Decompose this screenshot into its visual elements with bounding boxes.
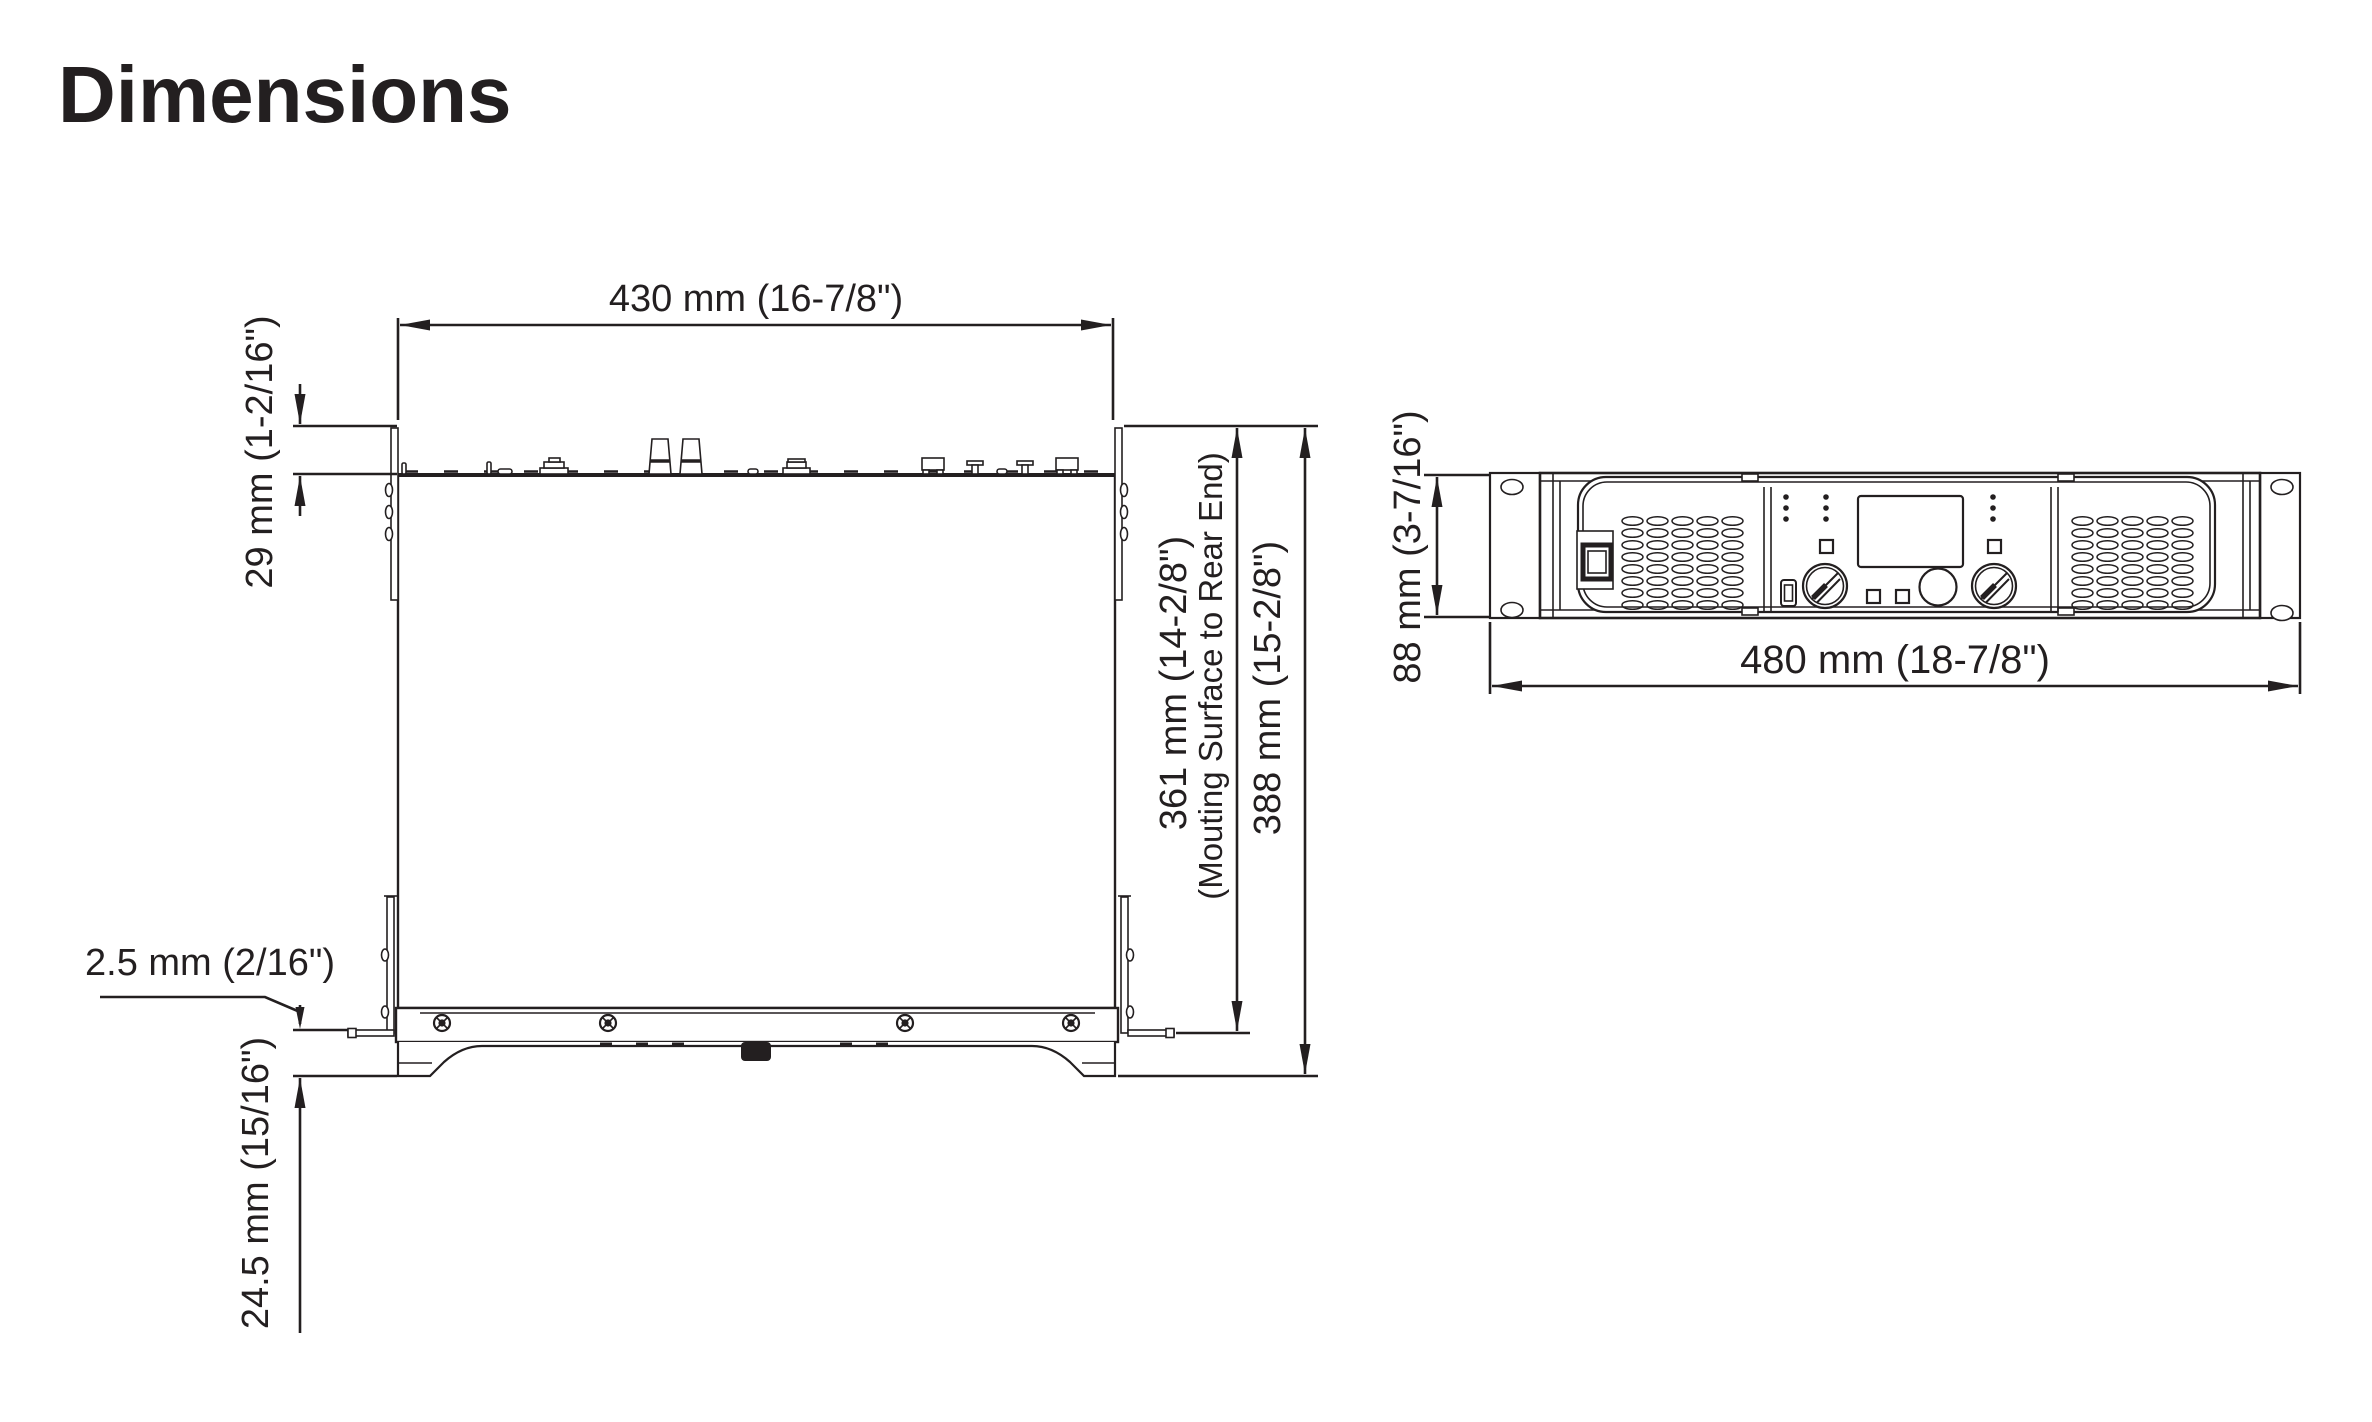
display-screen xyxy=(1858,496,1963,567)
dimensions-drawing: Dimensions xyxy=(0,0,2372,1422)
front-screw xyxy=(434,1015,450,1031)
led-meter-c xyxy=(1990,494,1996,522)
rear-bump xyxy=(748,469,758,474)
rear-bump xyxy=(997,469,1007,474)
dimension-width-430: 430 mm (16-7/8") xyxy=(398,278,1113,420)
rear-connectors xyxy=(402,439,1078,474)
dimensions-page: Dimensions xyxy=(0,0,2372,1422)
mounting-depth-label: 361 mm (14-2/8") xyxy=(1153,536,1195,830)
height-label: 88 mm (3-7/16") xyxy=(1387,410,1429,683)
usb-port xyxy=(1781,580,1796,606)
vent-grille-left xyxy=(1620,515,1745,611)
width-label: 430 mm (16-7/8") xyxy=(609,278,903,320)
gain-knob-b xyxy=(1972,564,2016,608)
rear-rail-left xyxy=(386,428,399,600)
rear-terminal-block xyxy=(540,458,568,474)
led-meter-b xyxy=(1823,494,1829,522)
small-button-a xyxy=(1867,590,1880,603)
dimension-rear-29: 29 mm (1-2/16") xyxy=(239,315,397,588)
front-width-label: 480 mm (18-7/8") xyxy=(1740,638,2050,682)
rear-pin xyxy=(402,463,406,474)
top-view: 430 mm (16-7/8") 29 mm (1-2/16") 361 mm … xyxy=(85,278,1318,1333)
dimension-depth-361-388: 361 mm (14-2/8") (Mouting Surface to Rea… xyxy=(1118,426,1318,1076)
dimension-ear-offset-2-5: 2.5 mm (2/16") xyxy=(85,942,348,1030)
vent-grille-right xyxy=(2070,515,2195,611)
rack-ear-left xyxy=(1490,473,1540,618)
led-meter-a xyxy=(1783,494,1789,522)
power-button xyxy=(1577,531,1613,589)
dimension-width-480: 480 mm (18-7/8") xyxy=(1490,622,2300,694)
ear-offset-label: 2.5 mm (2/16") xyxy=(85,942,335,984)
round-control xyxy=(1920,569,1957,606)
gain-knob-a xyxy=(1803,564,1847,608)
front-view: 88 mm (3-7/16") 480 mm (18-7/8") xyxy=(1387,410,2300,694)
rear-protrusion-label: 29 mm (1-2/16") xyxy=(239,315,281,588)
speaker-binding-posts xyxy=(649,439,702,474)
select-button-a xyxy=(1820,540,1833,553)
total-depth-label: 388 mm (15-2/8") xyxy=(1247,541,1289,835)
rear-t-connector xyxy=(1017,461,1033,474)
front-screw xyxy=(897,1015,913,1031)
dimension-front-24-5: 24.5 mm (15/16") xyxy=(235,1037,397,1333)
rear-rail-right xyxy=(1115,428,1128,600)
front-screw xyxy=(600,1015,616,1031)
front-depth-label: 24.5 mm (15/16") xyxy=(235,1037,277,1329)
dimension-height-88: 88 mm (3-7/16") xyxy=(1387,410,1490,683)
rear-block xyxy=(1056,458,1078,474)
front-ear-left-top xyxy=(348,896,397,1038)
rear-connector xyxy=(783,459,810,474)
small-button-b xyxy=(1896,590,1909,603)
select-button-b xyxy=(1988,540,2001,553)
front-bezel-profile xyxy=(398,1042,1115,1076)
front-panel-strip xyxy=(396,1008,1118,1042)
front-screw xyxy=(1063,1015,1079,1031)
rear-pin xyxy=(487,462,491,474)
front-ear-right-top xyxy=(1118,896,1174,1038)
front-knob-top-view xyxy=(741,1042,771,1061)
rack-ear-right xyxy=(2260,473,2300,621)
rear-bump xyxy=(498,469,512,474)
page-title: Dimensions xyxy=(58,50,511,139)
mounting-depth-note: (Mouting Surface to Rear End) xyxy=(1192,452,1229,900)
top-view-chassis-body xyxy=(398,475,1115,1008)
